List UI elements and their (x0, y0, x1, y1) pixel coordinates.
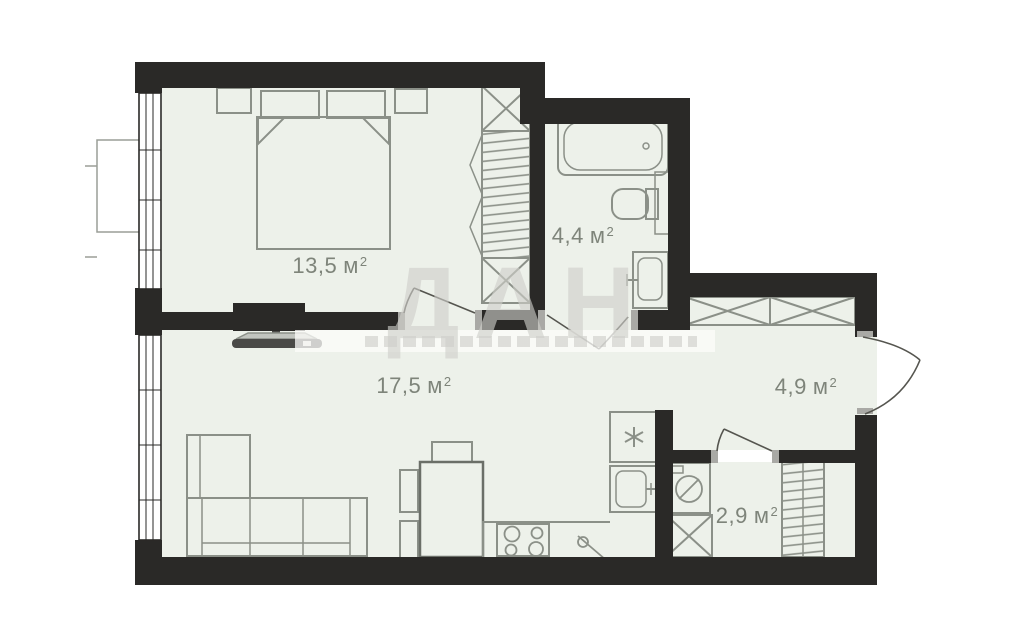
wall-top-bedroom (135, 62, 545, 88)
area-sup: 2 (606, 224, 614, 239)
area-value: 2,9 (716, 503, 748, 528)
area-sup: 2 (444, 374, 452, 389)
area-value: 17,5 (376, 373, 421, 398)
wardrobe-hanging-rail (482, 131, 530, 258)
wall-left-pier (135, 288, 162, 335)
wall-left-top-corner (135, 62, 162, 93)
area-value: 4,4 (552, 223, 584, 248)
area-sup: 2 (360, 254, 368, 269)
area-value: 13,5 (292, 253, 337, 278)
wall-tv-block (233, 303, 305, 331)
wall-right-upper (855, 273, 877, 337)
area-unit: м (754, 503, 770, 528)
living-window (139, 335, 161, 540)
area-label-living-kitchen: 17,5м2 (376, 373, 451, 399)
entry-threshold-floor (855, 337, 877, 415)
ac-unit-outline (97, 140, 142, 232)
area-unit: м (343, 253, 359, 278)
wall-hallway-top (668, 273, 877, 297)
area-sup: 2 (770, 504, 778, 519)
area-unit: м (590, 223, 606, 248)
wall-top-bathroom (520, 98, 690, 124)
dining-table (420, 462, 483, 557)
area-sup: 2 (829, 375, 837, 390)
wall-left-bottom-corner (135, 540, 162, 585)
watermark: ДАН (387, 252, 649, 354)
floor-plan-canvas: ДАН 13,5м2 4,4м2 17,5м2 4,9м2 2,9м2 (0, 0, 1024, 641)
bedroom-window (139, 93, 161, 289)
area-unit: м (427, 373, 443, 398)
area-value: 4,9 (775, 374, 807, 399)
area-label-bedroom: 13,5м2 (292, 253, 367, 279)
area-label-bathroom: 4,4м2 (552, 223, 614, 249)
area-label-hallway: 4,9м2 (775, 374, 837, 400)
area-label-storage: 2,9м2 (716, 503, 778, 529)
area-unit: м (813, 374, 829, 399)
wall-kitchen-storage (655, 410, 673, 557)
wall-bottom (135, 557, 877, 585)
wall-right-lower (855, 415, 877, 557)
